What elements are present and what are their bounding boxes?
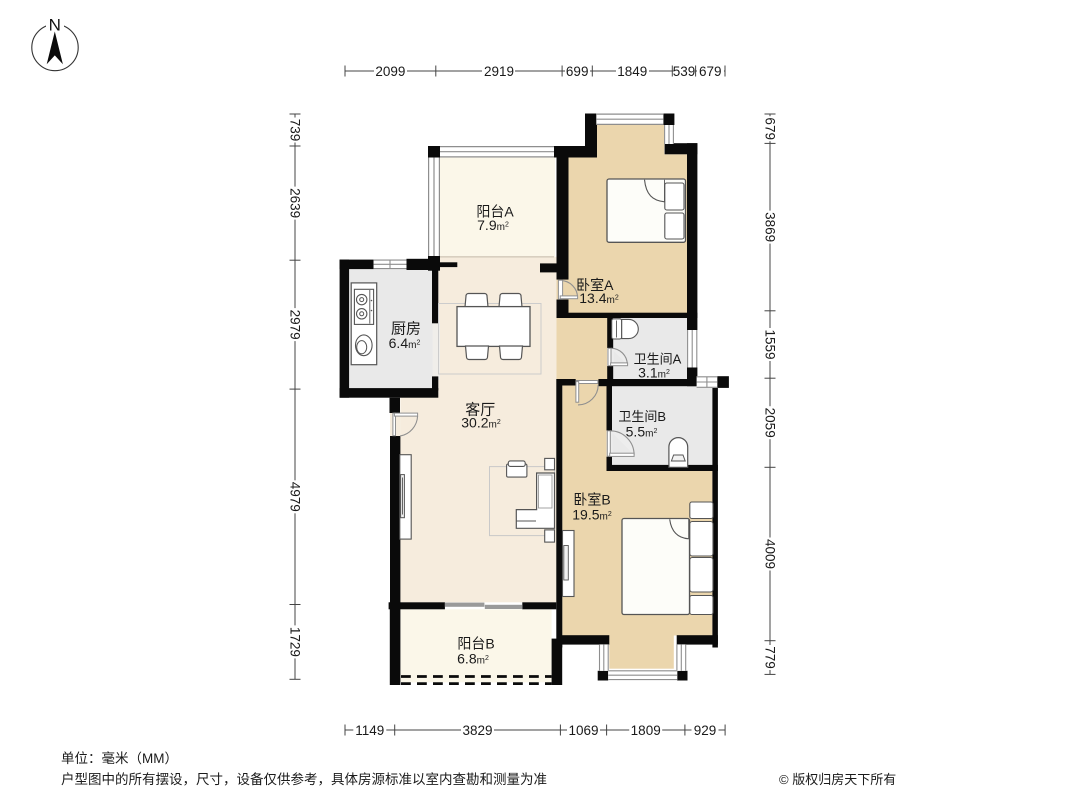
svg-text:户型图中的所有摆设，尺寸，设备仅供参考，具体房源标准以室内查: 户型图中的所有摆设，尺寸，设备仅供参考，具体房源标准以室内查勘和测量为准 <box>61 771 547 787</box>
svg-text:679: 679 <box>762 117 777 140</box>
svg-text:4979: 4979 <box>287 482 302 512</box>
svg-text:© 版权归房天下所有: © 版权归房天下所有 <box>779 772 896 787</box>
svg-text:929: 929 <box>694 723 717 738</box>
svg-text:1849: 1849 <box>617 64 647 79</box>
svg-text:3869: 3869 <box>762 212 777 242</box>
svg-text:1809: 1809 <box>631 723 661 738</box>
svg-text:单位：毫米（MM）: 单位：毫米（MM） <box>61 750 178 766</box>
svg-text:779: 779 <box>762 646 777 669</box>
svg-text:1069: 1069 <box>568 723 598 738</box>
svg-text:2059: 2059 <box>762 408 777 438</box>
svg-text:699: 699 <box>566 64 589 79</box>
svg-text:卫生间B: 卫生间B <box>618 409 666 424</box>
svg-text:1149: 1149 <box>355 723 384 738</box>
svg-text:2919: 2919 <box>484 64 514 79</box>
svg-text:739: 739 <box>287 119 302 142</box>
svg-text:2979: 2979 <box>287 310 302 340</box>
svg-text:1729: 1729 <box>287 627 302 657</box>
svg-text:3829: 3829 <box>462 723 492 738</box>
svg-text:4009: 4009 <box>762 539 777 569</box>
svg-text:539: 539 <box>673 64 696 79</box>
svg-text:卧室B: 卧室B <box>573 492 610 508</box>
svg-text:2099: 2099 <box>375 64 405 79</box>
svg-text:2639: 2639 <box>287 188 302 218</box>
svg-text:1559: 1559 <box>762 329 777 359</box>
svg-text:阳台B: 阳台B <box>457 636 494 652</box>
svg-text:679: 679 <box>699 64 722 79</box>
